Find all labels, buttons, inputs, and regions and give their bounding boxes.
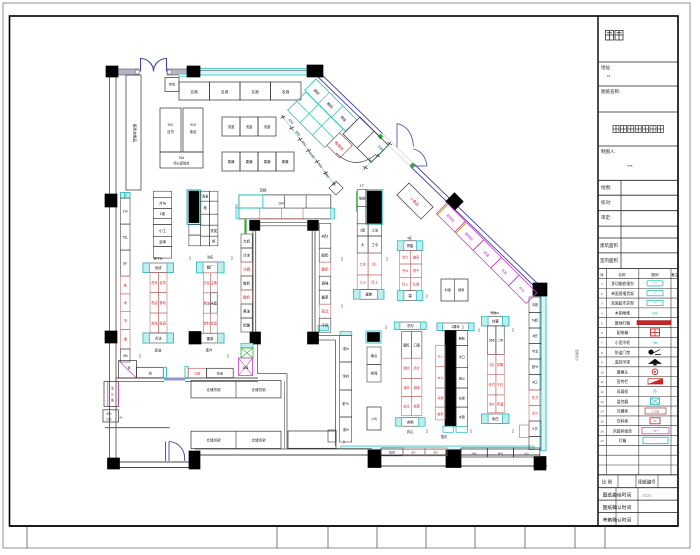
svg-text:10: 10 (600, 370, 604, 374)
svg-text:名酒: 名酒 (190, 89, 198, 94)
svg-text:米面: 米面 (211, 300, 217, 305)
svg-text:小型冷柜: 小型冷柜 (615, 340, 630, 345)
svg-text:次久: 次久 (402, 255, 409, 260)
svg-text:YL: YL (653, 419, 657, 423)
svg-text:次口: 次口 (459, 354, 465, 359)
svg-text:鲜奶: 鲜奶 (243, 280, 250, 285)
svg-text:工泊: 工泊 (372, 227, 379, 232)
svg-text:饮品: 饮品 (211, 321, 217, 326)
svg-text:二中: 二中 (497, 338, 503, 343)
svg-text:浅%: 浅% (343, 427, 349, 432)
svg-text:饼星: 饼星 (407, 243, 414, 248)
svg-text:大法: 大法 (155, 335, 162, 340)
svg-text:食品: 食品 (190, 129, 197, 134)
svg-text:多功能收银台: 多功能收银台 (611, 281, 634, 286)
svg-text:图例: 图例 (651, 272, 659, 277)
svg-text:2020: 2020 (642, 493, 652, 498)
svg-text:浴泽: 浴泽 (159, 239, 167, 244)
svg-text:**&**: **&** (652, 429, 659, 433)
svg-text:浅%: 浅% (343, 346, 349, 351)
svg-text:其吕: 其吕 (407, 430, 413, 434)
svg-text:干货: 干货 (322, 323, 329, 328)
svg-text:图纸名称:: 图纸名称: (601, 88, 620, 95)
svg-text:冬刀: 冬刀 (532, 395, 539, 400)
svg-text:酸奶: 酸奶 (441, 434, 447, 439)
svg-text:浅蓝: 浅蓝 (264, 124, 271, 129)
svg-text:防盗门禁: 防盗门禁 (615, 350, 630, 355)
svg-text:名酒: 名酒 (221, 89, 229, 94)
svg-text:11: 11 (600, 380, 603, 384)
svg-text:建筑面积: 建筑面积 (600, 242, 618, 249)
svg-text:特价促销台: 特价促销台 (174, 161, 190, 166)
svg-text:]m: ]m (123, 262, 127, 266)
svg-text:滑计: 滑计 (413, 366, 419, 371)
svg-text:礼袋: 礼袋 (413, 281, 420, 286)
svg-text:酸奶: 酸奶 (322, 267, 329, 272)
svg-text:张%: 张% (532, 364, 538, 369)
svg-text:浅蓝: 浅蓝 (228, 124, 235, 129)
svg-text:4奶1: 4奶1 (321, 233, 328, 238)
svg-text:洗发: 洗发 (202, 194, 209, 199)
svg-text:果茶: 果茶 (207, 336, 214, 341)
svg-text:小坑: 小坑 (371, 416, 377, 421)
svg-text:怕怕: 怕怕 (359, 196, 366, 201)
svg-text:1依: 1依 (160, 211, 166, 216)
svg-text:#旧: #旧 (532, 333, 537, 338)
svg-text:将吹: 将吹 (403, 385, 410, 390)
svg-text:灯箱: 灯箱 (619, 438, 627, 443)
svg-text:蚊香: 蚊香 (389, 450, 395, 455)
svg-text:冷藏: 冷藏 (243, 266, 250, 271)
svg-text:***: *** (653, 301, 656, 305)
svg-text:米比: 米比 (403, 403, 409, 408)
svg-text:监控半球: 监控半球 (615, 360, 630, 365)
svg-text:1%: 1% (123, 210, 128, 214)
svg-text:监控器: 监控器 (617, 399, 629, 404)
svg-text:2房: 2房 (360, 227, 365, 232)
svg-text:香皂: 香皂 (160, 300, 166, 305)
svg-text:水阻: 水阻 (459, 414, 465, 419)
svg-text:黄酒: 黄酒 (497, 401, 503, 406)
svg-text:仓储货架: 仓储货架 (206, 387, 221, 392)
svg-text:木制地堆: 木制地堆 (615, 310, 630, 315)
svg-text:4%: 4% (123, 354, 128, 358)
svg-text:**: ** (607, 74, 611, 79)
svg-text:温馨提示: 温馨提示 (575, 349, 580, 361)
svg-text:花雕: 花雕 (497, 362, 504, 367)
svg-text:存包: 存包 (169, 82, 176, 87)
svg-text:油: 油 (148, 371, 151, 376)
svg-text:洗衣: 洗衣 (151, 280, 158, 285)
svg-text:都厂: 都厂 (207, 265, 214, 270)
svg-text:优优: 优优 (155, 265, 162, 270)
svg-text:主食: 主食 (211, 280, 218, 285)
svg-text:雪糕M: 雪糕M (490, 310, 499, 315)
svg-text:酱菜: 酱菜 (322, 295, 329, 300)
svg-text:洗洁: 洗洁 (151, 300, 157, 305)
svg-text:鱼: 鱼 (111, 398, 114, 402)
svg-text:红工: 红工 (372, 280, 379, 285)
svg-text:必火: 必火 (106, 412, 112, 416)
svg-text:比 例: 比 例 (602, 479, 613, 486)
svg-text:16: 16 (600, 429, 604, 433)
svg-text:才与: 才与 (159, 200, 167, 205)
svg-text:****: **** (653, 282, 657, 286)
svg-text:鲜奶: 鲜奶 (322, 253, 329, 258)
svg-text:1A4: 1A4 (278, 202, 284, 206)
svg-text:3名: 3名 (407, 235, 412, 240)
svg-text:饼干M: 饼干M (154, 256, 163, 261)
svg-text:冷鲜: 冷鲜 (194, 371, 200, 376)
svg-text:黄油: 黄油 (243, 308, 250, 313)
svg-text:绸以: 绸以 (459, 375, 465, 380)
svg-text:全是: 全是 (243, 365, 249, 370)
svg-text:果脯: 果脯 (282, 159, 289, 164)
svg-text:米白: 米白 (492, 416, 499, 421)
svg-text:吐火: 吐火 (402, 281, 409, 286)
svg-text:冬R: 冬R (489, 401, 495, 406)
svg-text:图纸确认时间: 图纸确认时间 (603, 504, 632, 511)
svg-text:假默: 假默 (459, 335, 465, 340)
svg-text:单面靠墙货架: 单面靠墙货架 (611, 291, 634, 296)
svg-text:奶酪: 奶酪 (243, 322, 250, 327)
svg-text:整体灯箱: 整体灯箱 (615, 320, 630, 325)
svg-text:胭红: 胭红 (403, 342, 409, 347)
svg-text:酸奶: 酸奶 (243, 294, 250, 299)
svg-text:糖果: 糖果 (458, 287, 464, 292)
svg-text:12: 12 (600, 390, 604, 394)
svg-text:宣传栏: 宣传栏 (617, 379, 629, 384)
svg-text:3A5: 3A5 (489, 339, 495, 343)
svg-text:浅蓝: 浅蓝 (246, 124, 253, 129)
svg-text:料理: 料理 (445, 287, 451, 292)
svg-text:13: 13 (600, 400, 604, 404)
svg-text:#口: #口 (532, 381, 537, 385)
svg-text:*88: *88 (652, 341, 657, 345)
svg-text:仓储货架: 仓储货架 (206, 438, 221, 443)
svg-text:冷冻: 冷冻 (243, 252, 250, 257)
svg-text:虾%: 虾% (343, 401, 349, 406)
svg-text:摄像头: 摄像头 (617, 369, 629, 374)
svg-text:小工: 小工 (159, 228, 167, 233)
svg-text:京杨: 京杨 (260, 188, 267, 193)
svg-text:910: 910 (168, 123, 174, 127)
svg-text:红Y: 红Y (433, 450, 438, 455)
svg-text:915: 915 (190, 123, 196, 127)
svg-text:果脯: 果脯 (246, 159, 253, 164)
svg-text:地址:: 地址: (601, 64, 611, 70)
svg-text:今火: 今火 (437, 353, 443, 358)
svg-text:酱菜: 酱菜 (437, 411, 443, 416)
svg-text:图纸编号: 图纸编号 (638, 479, 656, 486)
svg-text:次久: 次久 (437, 375, 443, 380)
svg-text:饼干: 饼干 (413, 268, 419, 273)
svg-text:浸名: 浸名 (207, 254, 213, 259)
svg-text:考察确认时间: 考察确认时间 (603, 517, 632, 524)
svg-text:果脯: 果脯 (264, 159, 271, 164)
svg-text:杏明: 杏明 (407, 419, 414, 424)
svg-text:奖吹: 奖吹 (403, 366, 410, 371)
svg-text:调味: 调味 (413, 385, 420, 390)
svg-text:南北: 南北 (322, 309, 329, 314)
svg-text:工今: 工今 (372, 242, 379, 247)
svg-text:图纸勘绘时间: 图纸勘绘时间 (603, 492, 632, 499)
svg-text:地瓜: 地瓜 (371, 353, 378, 358)
svg-text:1周年: 1周年 (451, 324, 460, 329)
svg-text:工木: 工木 (359, 261, 366, 266)
svg-text:工火: 工火 (359, 281, 366, 285)
svg-text:口潮: 口潮 (413, 342, 419, 347)
svg-text:%奶: %奶 (532, 318, 539, 323)
svg-text:调味: 调味 (322, 281, 329, 286)
svg-text:纸品: 纸品 (160, 320, 166, 325)
svg-text:山花: 山花 (106, 417, 112, 421)
svg-text:T2L: T2L (122, 236, 128, 240)
svg-text:3白: 3白 (489, 362, 494, 367)
svg-text:右盘: 右盘 (459, 395, 465, 400)
svg-text:制图人:: 制图人: (601, 148, 616, 155)
svg-text:配电箱: 配电箱 (617, 330, 629, 335)
svg-text:M%: M% (498, 451, 503, 455)
svg-text:名称: 名称 (618, 272, 626, 277)
svg-text:足浴: 足浴 (155, 348, 162, 353)
svg-text:名酒: 名酒 (282, 89, 290, 94)
svg-text:排湾: 排湾 (371, 371, 378, 376)
svg-text:粮油: 粮油 (204, 300, 210, 305)
svg-text:***: *** (653, 291, 656, 295)
svg-text:红L: 红L (372, 261, 377, 266)
svg-text:H%: H% (472, 451, 477, 455)
svg-text:14: 14 (600, 410, 604, 414)
svg-text:冷藏柜: 冷藏柜 (617, 409, 629, 414)
svg-text:风幕柜组合: 风幕柜组合 (613, 428, 632, 433)
svg-text:审定:: 审定: (601, 214, 611, 221)
svg-text:甘薯: 甘薯 (492, 318, 499, 323)
svg-text:浮约: 浮约 (342, 373, 349, 378)
svg-text:果脯: 果脯 (228, 159, 235, 164)
svg-text:2个: 2个 (360, 184, 365, 188)
svg-text:今奶: 今奶 (532, 302, 539, 307)
svg-text:干红: 干红 (497, 382, 503, 387)
svg-text:速食: 速食 (365, 292, 373, 297)
svg-text:仓储货架: 仓储货架 (251, 438, 266, 443)
svg-text:***: *** (627, 164, 633, 169)
svg-text:备注: 备注 (671, 272, 678, 277)
svg-text:冬竹: 冬竹 (489, 382, 496, 387)
svg-text:百货: 百货 (160, 280, 166, 285)
svg-text:红Y: 红Y (411, 450, 416, 455)
svg-text:X夕: X夕 (532, 426, 537, 431)
svg-text:绘图:: 绘图: (601, 184, 611, 191)
svg-text:M8: M8 (652, 310, 658, 315)
svg-text:大奶: 大奶 (243, 238, 250, 243)
svg-text:齐: 齐 (653, 388, 658, 395)
svg-text:曲奇: 曲奇 (413, 255, 419, 260)
svg-text:仓储货架: 仓储货架 (251, 387, 266, 392)
svg-text:公: 公 (111, 392, 114, 396)
svg-text:校对:: 校对: (601, 199, 611, 206)
svg-text:双面超市货架: 双面超市货架 (611, 301, 634, 306)
svg-text:百货: 百货 (167, 129, 174, 134)
svg-text:洗涤: 洗涤 (151, 320, 157, 325)
svg-text:15: 15 (600, 420, 604, 424)
svg-text:今文: 今文 (532, 349, 539, 354)
svg-text:次沟: 次沟 (407, 323, 414, 328)
svg-text:室内面积: 室内面积 (600, 257, 618, 264)
svg-text:17: 17 (600, 439, 604, 443)
svg-text:服务台用品: 服务台用品 (133, 124, 138, 142)
svg-text:芝麻: 芝麻 (217, 371, 224, 376)
svg-text:请顺: 请顺 (437, 395, 443, 400)
svg-text:立: 立 (111, 386, 114, 390)
svg-text:916: 916 (179, 156, 185, 160)
svg-text:饮料柜: 饮料柜 (617, 419, 629, 424)
svg-text:风幕柜: 风幕柜 (617, 389, 629, 394)
svg-text:1.5米: 1.5米 (652, 408, 659, 413)
svg-text:茶叶: 茶叶 (206, 348, 213, 353)
svg-text:文%: 文% (532, 411, 538, 416)
svg-text:酱菜: 酱菜 (413, 403, 420, 408)
svg-text:名酒: 名酒 (251, 89, 259, 94)
svg-text:外%: 外% (402, 268, 408, 273)
svg-text:291: 291 (235, 204, 238, 209)
svg-text:洗发: 洗发 (210, 228, 217, 233)
